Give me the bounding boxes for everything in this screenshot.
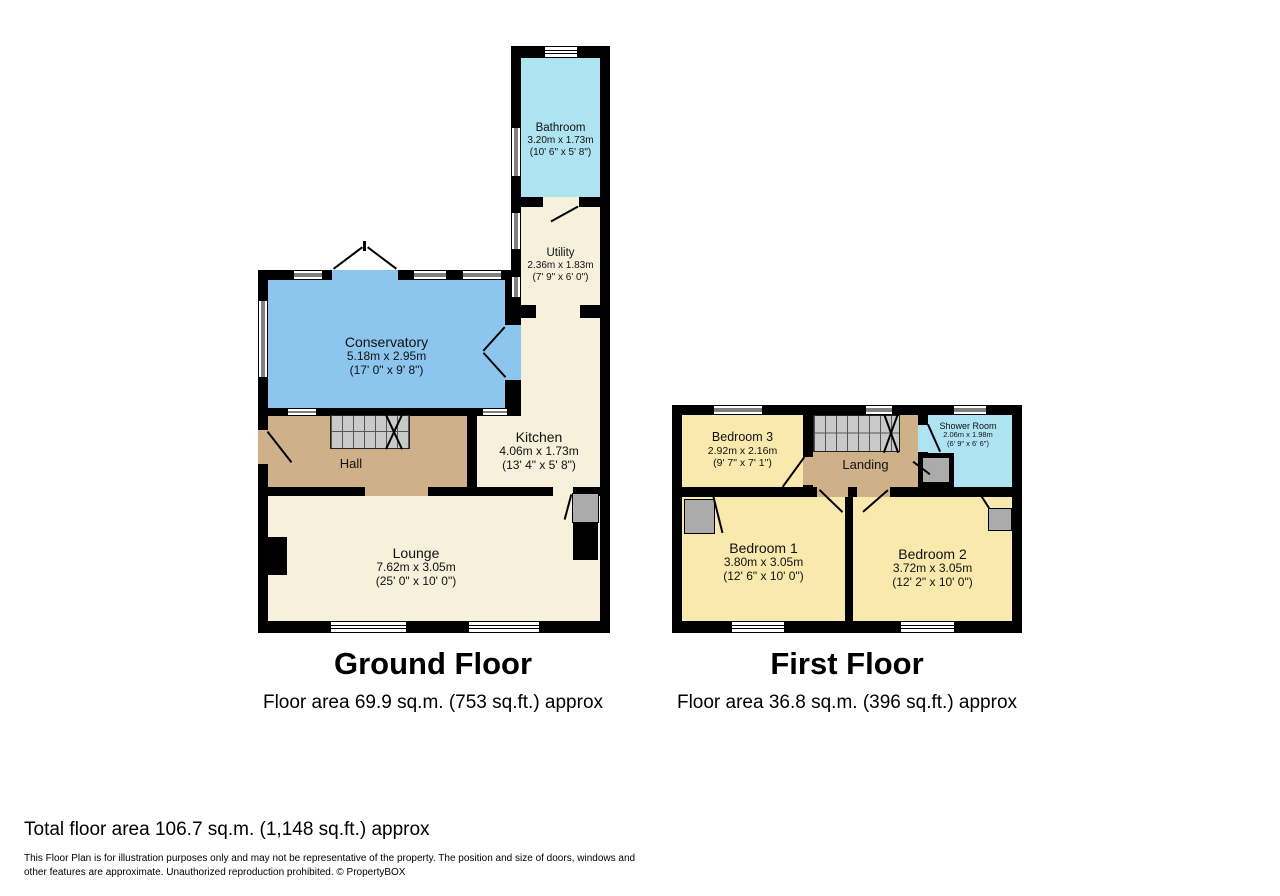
room-fill-bedroom3	[682, 415, 803, 487]
total-floor-area: Total floor area 106.7 sq.m. (1,148 sq.f…	[24, 819, 430, 841]
window	[865, 405, 893, 415]
door-opening	[332, 270, 398, 280]
first-floor-area: Floor area 36.8 sq.m. (396 sq.ft.) appro…	[647, 692, 1047, 714]
window	[953, 405, 987, 415]
door-center-tick	[363, 241, 366, 251]
ground-floor-title: Ground Floor	[233, 646, 633, 682]
door-opening	[918, 425, 928, 452]
window	[900, 621, 955, 633]
door-opening	[505, 325, 521, 380]
window	[713, 405, 763, 415]
room-fill-lounge	[268, 496, 600, 621]
window	[258, 300, 268, 378]
window	[330, 621, 407, 633]
door-opening	[536, 305, 580, 318]
window	[482, 408, 508, 416]
room-fill-kitchen	[521, 318, 600, 487]
ground-floor-area: Floor area 69.9 sq.m. (753 sq.ft.) appro…	[233, 692, 633, 714]
window	[287, 408, 317, 416]
chimney-breast	[573, 522, 598, 560]
wardrobe	[684, 499, 715, 534]
cupboard	[572, 493, 599, 523]
disclaimer-text: This Floor Plan is for illustration purp…	[24, 852, 639, 879]
window	[511, 127, 521, 177]
window	[511, 212, 521, 250]
window	[293, 270, 323, 280]
wardrobe	[988, 508, 1012, 531]
window	[511, 276, 521, 298]
room-fill-kitchen	[477, 416, 521, 487]
door-leaf	[333, 246, 363, 269]
door-opening	[803, 457, 813, 485]
door-opening	[258, 430, 268, 464]
window	[731, 621, 785, 633]
room-fill-bathroom	[521, 58, 600, 197]
door-leaf	[367, 246, 397, 269]
room-fill-conservatory	[268, 280, 505, 408]
window	[413, 270, 447, 280]
door-opening	[365, 487, 428, 496]
first-floor-title: First Floor	[647, 646, 1047, 682]
window	[544, 46, 578, 58]
chimney-breast	[268, 537, 287, 575]
window	[468, 621, 540, 633]
floorplan-page: Bathroom 3.20m x 1.73m (10' 6" x 5' 8") …	[0, 0, 1280, 896]
window	[462, 270, 502, 280]
room-fill-utility	[521, 207, 600, 305]
door-opening	[543, 197, 579, 207]
